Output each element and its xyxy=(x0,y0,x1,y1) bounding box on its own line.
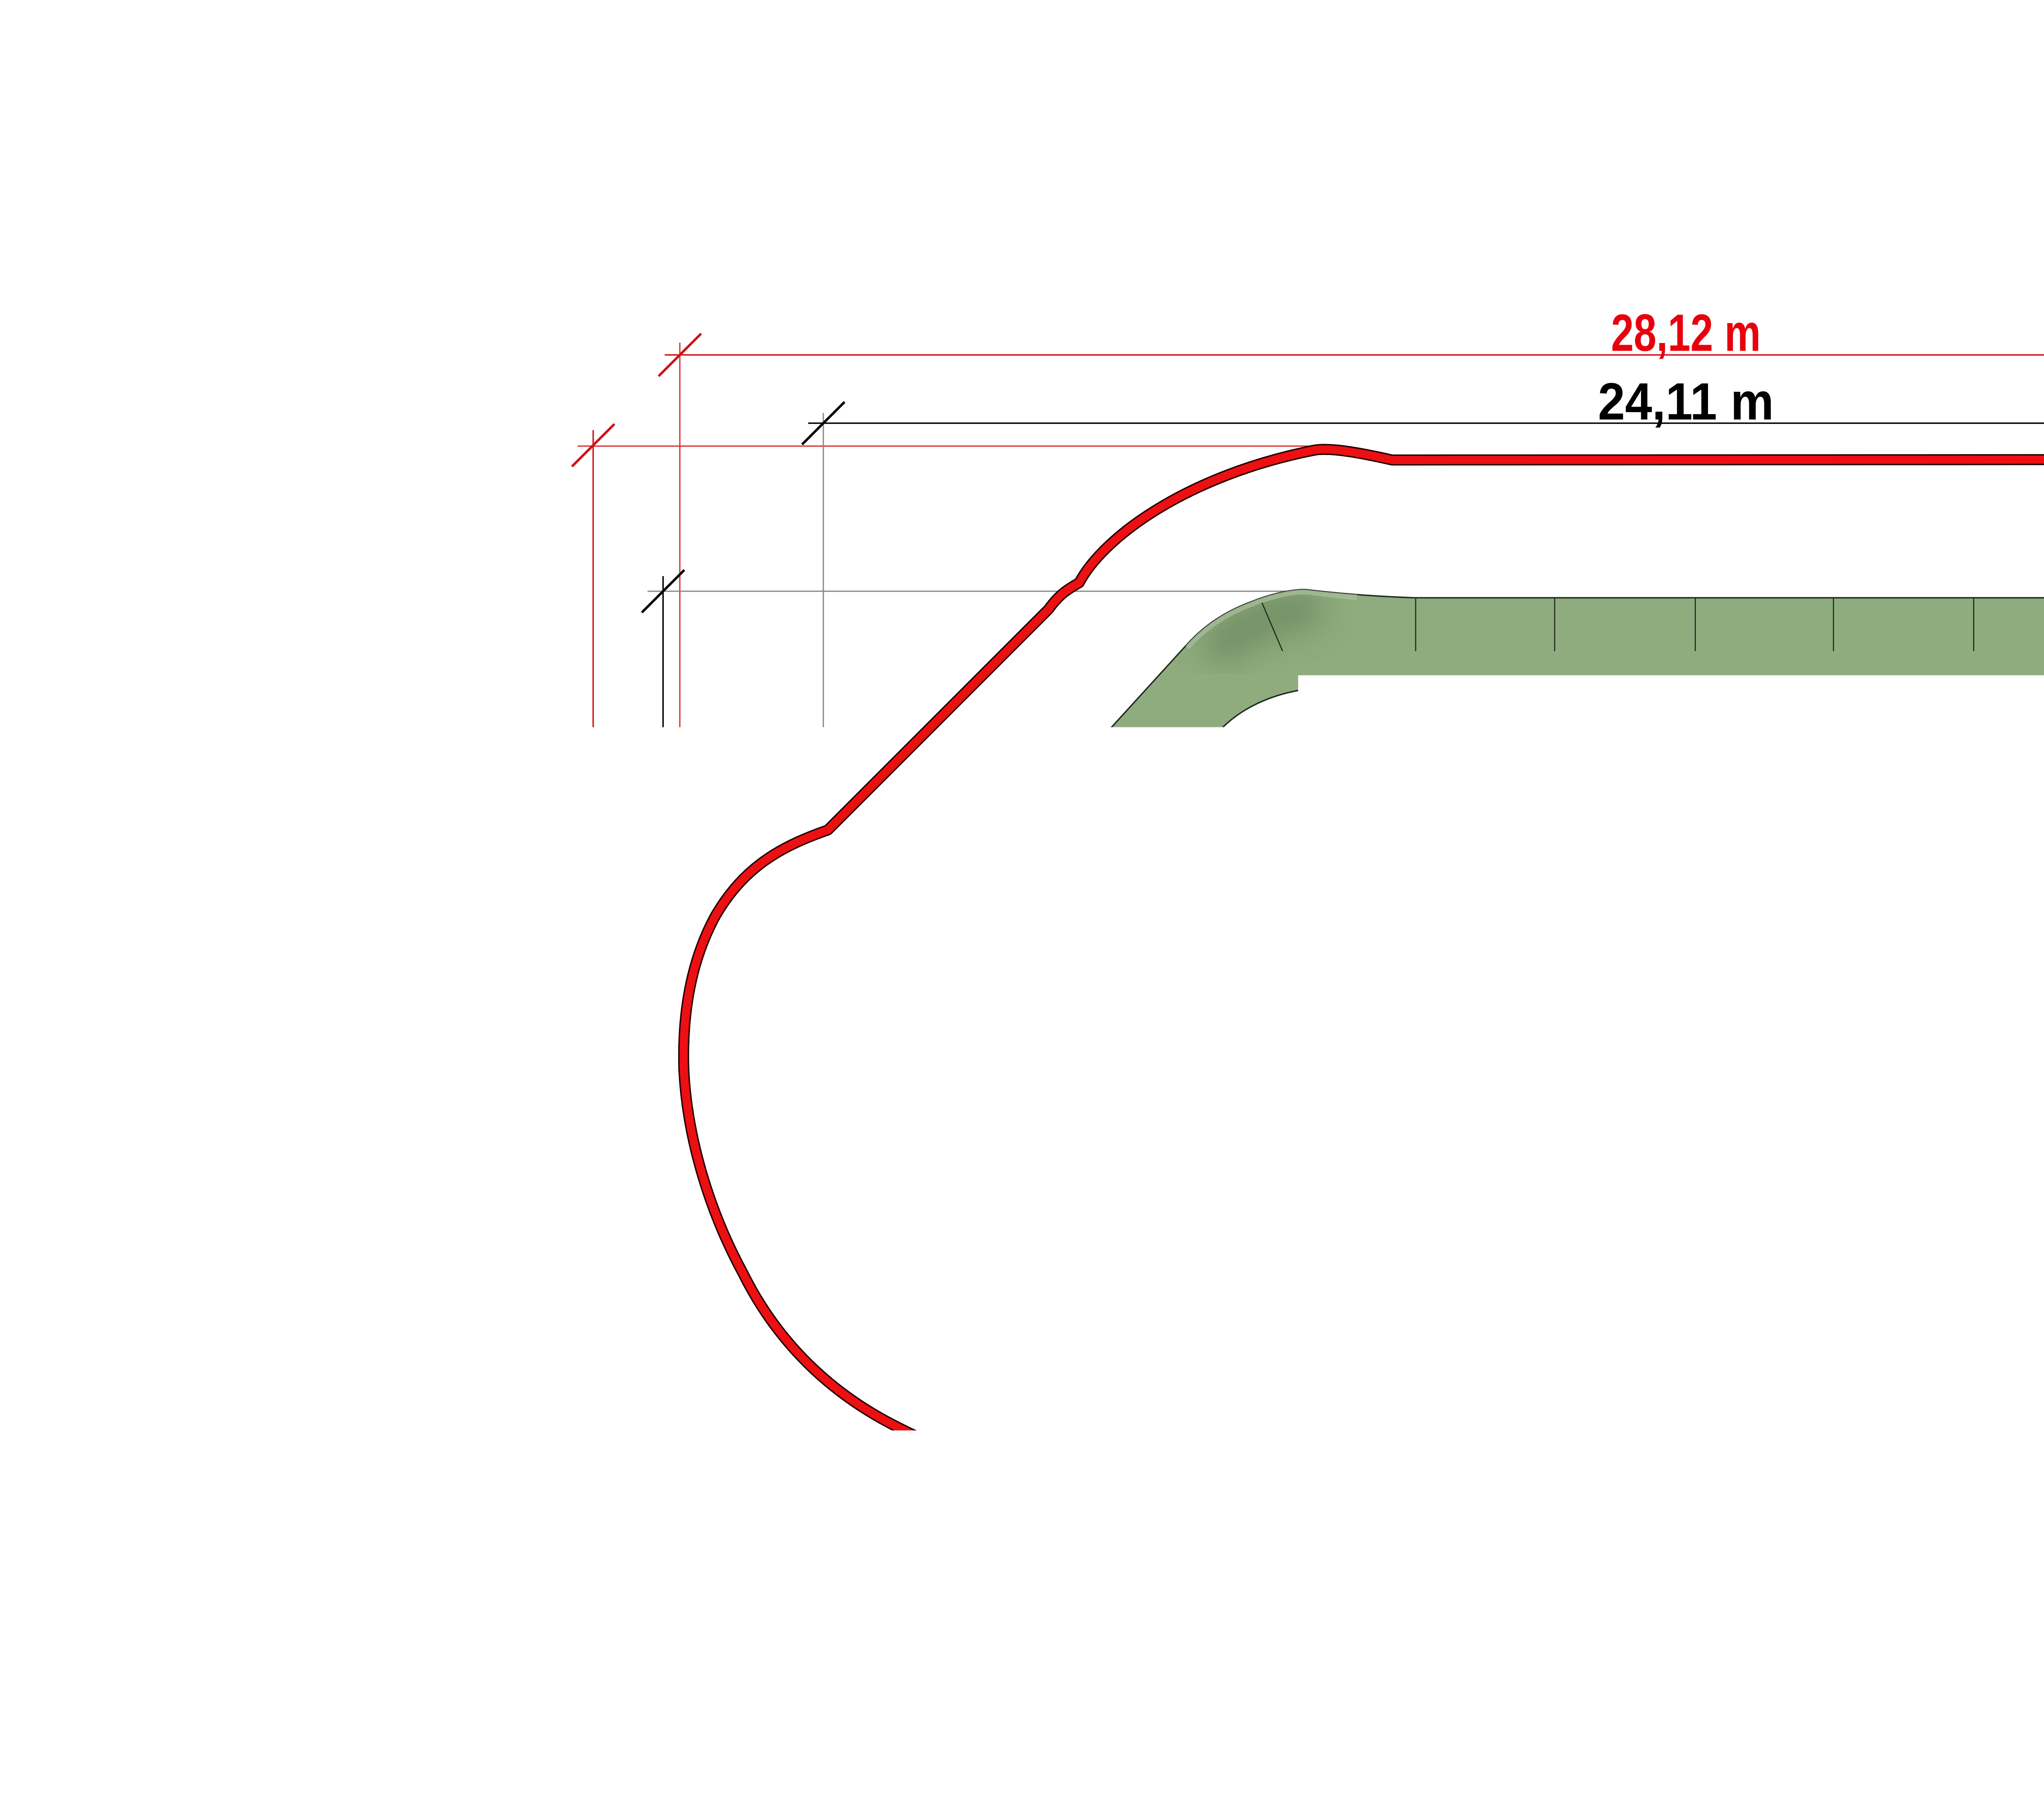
svg-text:28,12 m: 28,12 m xyxy=(1611,304,1761,362)
svg-text:15,65 m: 15,65 m xyxy=(544,935,591,1074)
svg-text:11,06 m: 11,06 m xyxy=(614,915,663,1117)
svg-text:24,11 m: 24,11 m xyxy=(1598,372,1774,431)
